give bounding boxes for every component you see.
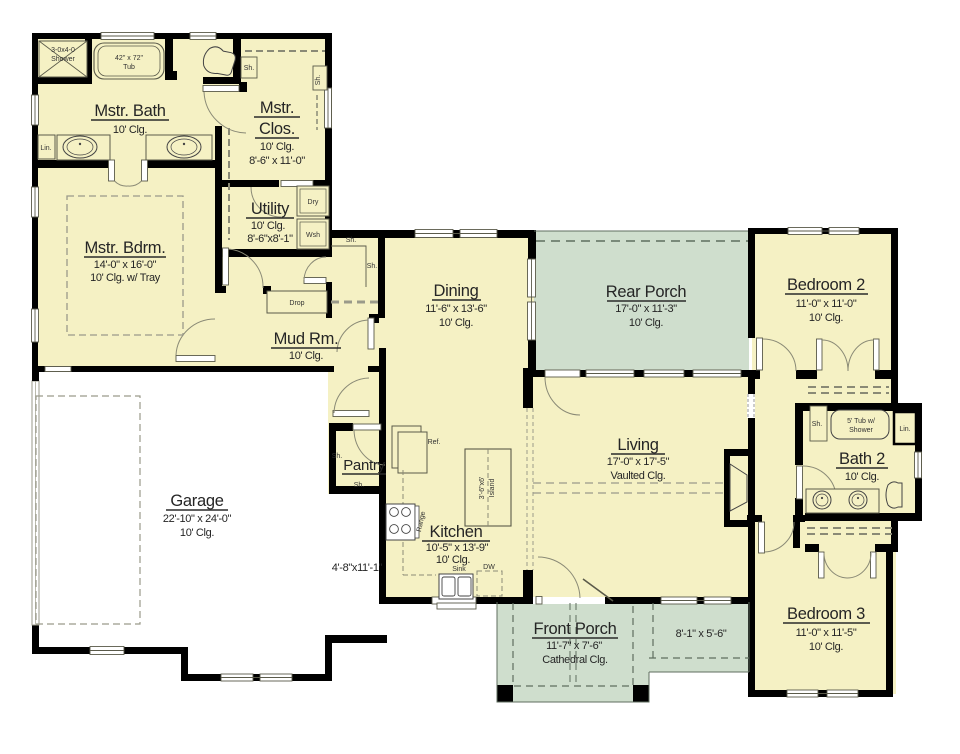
svg-text:4'-8"x11'-1": 4'-8"x11'-1" <box>332 562 383 574</box>
svg-text:8'-6" x 11'-0": 8'-6" x 11'-0" <box>249 155 305 167</box>
svg-text:Shower: Shower <box>51 56 75 63</box>
svg-text:Sink: Sink <box>452 566 466 573</box>
svg-text:17'-0" x 11'-3": 17'-0" x 11'-3" <box>615 303 677 315</box>
svg-text:Mud Rm.: Mud Rm. <box>274 330 339 348</box>
svg-text:Drop: Drop <box>289 300 304 307</box>
svg-text:11'-0" x 11'-0": 11'-0" x 11'-0" <box>796 298 857 310</box>
svg-text:22'-10" x 24'-0": 22'-10" x 24'-0" <box>163 513 232 525</box>
svg-text:Mstr.: Mstr. <box>260 99 294 117</box>
svg-text:10' Clg.: 10' Clg. <box>289 350 323 362</box>
svg-text:Tub: Tub <box>123 64 135 71</box>
svg-text:Bedroom 2: Bedroom 2 <box>787 276 865 294</box>
svg-text:Rear Porch: Rear Porch <box>606 283 687 301</box>
svg-text:Vaulted Clg.: Vaulted Clg. <box>611 470 666 482</box>
svg-text:17'-0" x 17'-5": 17'-0" x 17'-5" <box>607 456 670 468</box>
svg-text:Sh.: Sh. <box>315 75 322 86</box>
svg-text:Garage: Garage <box>170 492 223 510</box>
svg-text:10' Clg.: 10' Clg. <box>180 527 214 539</box>
svg-text:10' Clg.: 10' Clg. <box>809 641 843 653</box>
svg-text:3-0x4-0: 3-0x4-0 <box>51 47 75 54</box>
svg-text:Front Porch: Front Porch <box>534 620 617 638</box>
svg-text:Mstr. Bdrm.: Mstr. Bdrm. <box>84 239 165 257</box>
svg-text:Sh.: Sh. <box>346 237 357 244</box>
svg-text:Lin.: Lin. <box>899 426 910 433</box>
svg-text:11'-7" x 7'-6": 11'-7" x 7'-6" <box>546 640 602 652</box>
svg-text:Sh.: Sh. <box>354 482 365 489</box>
svg-text:10'-5" x 13'-9": 10'-5" x 13'-9" <box>426 542 489 554</box>
svg-text:Utility: Utility <box>251 200 290 218</box>
svg-text:42" x 72": 42" x 72" <box>115 55 143 62</box>
svg-text:8'-1" x 5'-6": 8'-1" x 5'-6" <box>676 628 727 640</box>
svg-text:10' Clg.: 10' Clg. <box>629 317 663 329</box>
svg-text:11'-0" x 11'-5": 11'-0" x 11'-5" <box>796 627 857 639</box>
svg-text:Sh.: Sh. <box>244 65 255 72</box>
svg-text:Kitchen: Kitchen <box>430 523 483 541</box>
svg-text:Ref.: Ref. <box>428 439 441 446</box>
svg-text:DW: DW <box>483 564 495 571</box>
svg-text:5' Tub w/: 5' Tub w/ <box>847 418 875 425</box>
svg-text:10' Clg.: 10' Clg. <box>113 124 147 136</box>
svg-text:Living: Living <box>617 436 658 454</box>
svg-text:14'-0" x 16'-0": 14'-0" x 16'-0" <box>94 259 157 271</box>
svg-text:10' Clg.: 10' Clg. <box>809 312 843 324</box>
svg-text:Sh.: Sh. <box>812 421 823 428</box>
svg-text:Shower: Shower <box>849 427 873 434</box>
svg-text:Wsh: Wsh <box>306 232 320 239</box>
svg-text:Mstr. Bath: Mstr. Bath <box>94 102 165 120</box>
svg-text:Sh.: Sh. <box>367 263 378 270</box>
svg-text:Dining: Dining <box>434 282 479 300</box>
svg-text:10' Clg. w/ Tray: 10' Clg. w/ Tray <box>90 272 161 284</box>
svg-text:10' Clg.: 10' Clg. <box>439 317 473 329</box>
svg-text:8'-6"x8'-1": 8'-6"x8'-1" <box>247 233 293 245</box>
svg-text:10' Clg.: 10' Clg. <box>260 141 294 153</box>
svg-text:3'-6"x6': 3'-6"x6' <box>479 477 486 500</box>
svg-text:Bedroom 3: Bedroom 3 <box>787 605 865 623</box>
svg-text:11'-6" x 13'-6": 11'-6" x 13'-6" <box>425 303 487 315</box>
svg-text:Cathedral Clg.: Cathedral Clg. <box>542 654 608 666</box>
svg-text:10' Clg.: 10' Clg. <box>845 471 879 483</box>
svg-text:10' Clg.: 10' Clg. <box>251 220 285 232</box>
svg-text:10' Clg.: 10' Clg. <box>436 554 470 566</box>
svg-text:Bath 2: Bath 2 <box>839 450 885 468</box>
svg-text:Pantry: Pantry <box>343 457 385 474</box>
svg-text:Sh.: Sh. <box>332 453 343 460</box>
svg-text:Clos.: Clos. <box>259 120 295 138</box>
svg-text:Island: Island <box>489 479 496 498</box>
svg-text:Lin.: Lin. <box>40 145 51 152</box>
svg-text:Dry: Dry <box>308 199 319 206</box>
